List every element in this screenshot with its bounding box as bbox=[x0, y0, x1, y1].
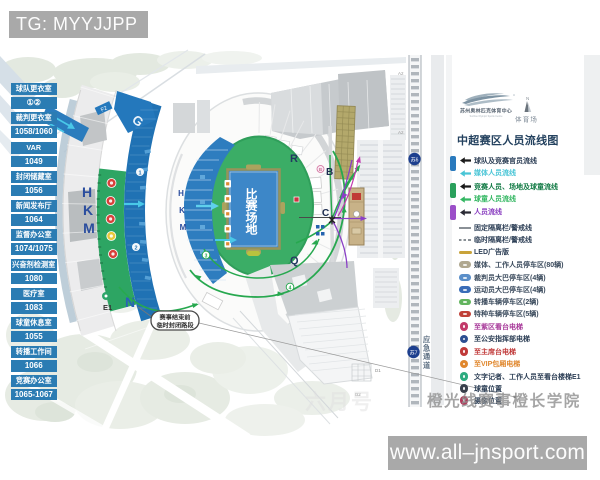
svg-text:A2: A2 bbox=[398, 130, 404, 135]
svg-text:1: 1 bbox=[138, 171, 141, 177]
svg-text:临时封闭路段: 临时封闭路段 bbox=[156, 322, 194, 330]
svg-text:D1: D1 bbox=[375, 368, 381, 373]
svg-text:B: B bbox=[326, 167, 333, 178]
svg-text:4: 4 bbox=[289, 285, 292, 291]
svg-text:道: 道 bbox=[423, 361, 431, 370]
svg-text:苏6: 苏6 bbox=[411, 156, 419, 163]
svg-text:3: 3 bbox=[205, 253, 208, 259]
svg-text:苏7: 苏7 bbox=[410, 349, 418, 356]
svg-text:M: M bbox=[180, 223, 187, 232]
svg-text:Q: Q bbox=[290, 255, 299, 267]
svg-text:苏州奥林匹克体育中心: 苏州奥林匹克体育中心 bbox=[460, 108, 512, 115]
svg-text:2: 2 bbox=[134, 246, 137, 252]
svg-text:M: M bbox=[83, 220, 95, 236]
svg-text:K: K bbox=[83, 202, 93, 218]
svg-text:H: H bbox=[178, 189, 184, 198]
svg-text:体育场: 体育场 bbox=[515, 115, 538, 124]
svg-text:E1: E1 bbox=[103, 303, 112, 312]
svg-text:N: N bbox=[526, 96, 529, 101]
svg-text:地: 地 bbox=[245, 222, 257, 237]
svg-text:Suzhou Olympic Sports Centre: Suzhou Olympic Sports Centre bbox=[470, 115, 503, 118]
svg-text:N: N bbox=[125, 294, 135, 310]
svg-text:赛事结束前: 赛事结束前 bbox=[159, 314, 191, 322]
svg-text:A2: A2 bbox=[398, 71, 404, 76]
svg-text:K: K bbox=[179, 206, 185, 215]
svg-text:B: B bbox=[319, 167, 322, 172]
svg-text:H: H bbox=[82, 184, 92, 200]
svg-text:R: R bbox=[290, 153, 298, 165]
svg-text:C: C bbox=[322, 208, 329, 219]
